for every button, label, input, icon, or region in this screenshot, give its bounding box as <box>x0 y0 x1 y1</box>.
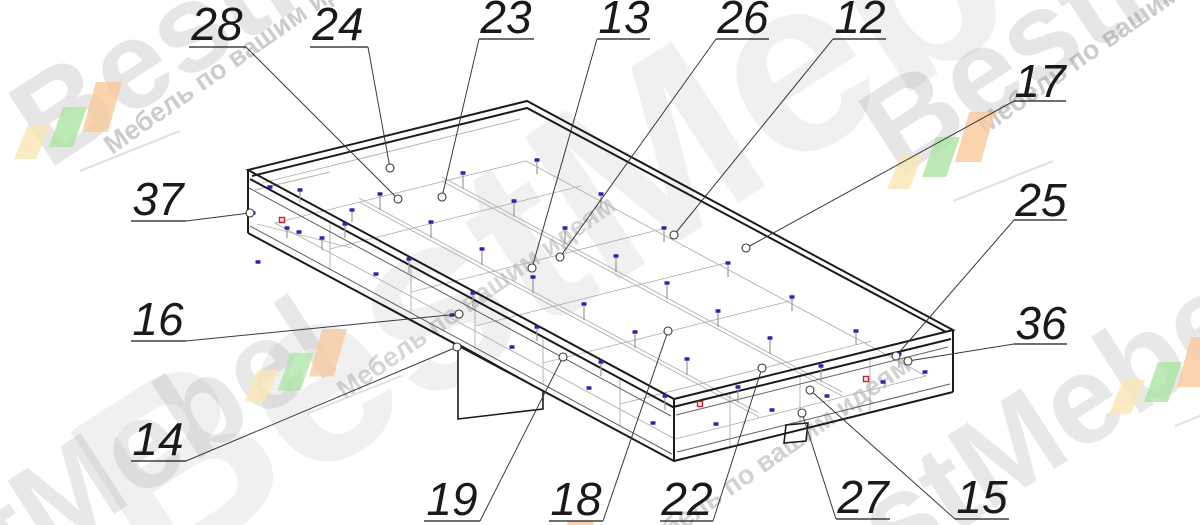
confirmat-marker <box>698 402 703 407</box>
screw-head <box>881 380 886 384</box>
screw-head <box>923 370 928 374</box>
leader-endpoint-37 <box>246 209 254 217</box>
screw-head <box>854 329 859 333</box>
part-label-12: 12 <box>834 0 885 43</box>
screw-head <box>298 188 303 192</box>
leader-endpoint-17 <box>742 244 750 252</box>
part-label-17: 17 <box>1014 55 1067 107</box>
leader-endpoint-36 <box>904 357 912 365</box>
screw-head <box>714 422 719 426</box>
part-label-26: 26 <box>716 0 769 43</box>
part-label-27: 27 <box>836 471 890 523</box>
screw-head <box>633 330 638 334</box>
leader-endpoint-13 <box>528 264 536 272</box>
screw-head <box>614 254 619 258</box>
leader-endpoint-19 <box>559 353 567 361</box>
leader-endpoint-14 <box>453 343 461 351</box>
leader-endpoint-26 <box>556 253 564 261</box>
part-label-16: 16 <box>132 293 184 345</box>
leader-endpoint-15 <box>806 386 814 394</box>
leader-line-18 <box>603 331 668 521</box>
screw-head <box>256 260 261 264</box>
screw-head <box>685 357 690 361</box>
part-label-19: 19 <box>426 473 477 525</box>
screw-head <box>736 385 741 389</box>
leader-line-37 <box>186 213 250 221</box>
screw-head <box>665 281 670 285</box>
screw-head <box>374 272 379 276</box>
part-label-18: 18 <box>550 473 602 525</box>
leader-line-25 <box>896 220 1014 356</box>
screw-head <box>268 185 273 189</box>
screw-head <box>480 247 485 251</box>
screw-head <box>587 386 592 390</box>
screw-head <box>535 325 540 329</box>
part-label-36: 36 <box>1015 297 1067 349</box>
leader-endpoint-12 <box>670 231 678 239</box>
screw-head <box>790 295 795 299</box>
leader-endpoint-25 <box>892 352 900 360</box>
screw-head <box>599 360 604 364</box>
leader-endpoint-28 <box>394 195 402 203</box>
assembly-diagram: BestMebelBestMebelBestMebelBestMebelBest… <box>0 0 1200 525</box>
leader-endpoint-22 <box>758 364 766 372</box>
part-label-15: 15 <box>956 471 1008 523</box>
screw-head <box>599 192 604 196</box>
part-label-24: 24 <box>311 0 363 50</box>
screw-head <box>461 171 466 175</box>
screw-head <box>563 226 568 230</box>
screw-head <box>662 226 667 230</box>
screw-head <box>343 222 348 226</box>
screw-head <box>582 302 587 306</box>
technical-drawing-canvas: BestMebelBestMebelBestMebelBestMebelBest… <box>0 0 1200 525</box>
screw-head <box>297 230 302 234</box>
part-label-13: 13 <box>598 0 650 43</box>
screw-head <box>471 291 476 295</box>
part-label-28: 28 <box>190 0 243 50</box>
screw-head <box>726 261 731 265</box>
screw-head <box>285 226 290 230</box>
screw-head <box>429 220 434 224</box>
screw-head <box>535 158 540 162</box>
part-label-14: 14 <box>132 413 183 465</box>
screw-head <box>663 394 668 398</box>
screw-head <box>350 208 355 212</box>
leader-endpoint-18 <box>664 327 672 335</box>
leader-endpoint-24 <box>386 164 394 172</box>
screw-head <box>768 336 773 340</box>
screw-head <box>378 192 383 196</box>
part-label-23: 23 <box>479 0 532 43</box>
watermark-brand-text: BestMebel <box>699 226 1200 525</box>
leader-line-28 <box>246 47 398 199</box>
screw-head <box>819 364 824 368</box>
screw-head <box>512 199 517 203</box>
screw-head <box>510 345 515 349</box>
leader-endpoint-23 <box>438 193 446 201</box>
screw-head <box>407 257 412 261</box>
leader-endpoint-27 <box>798 409 806 417</box>
screw-head <box>651 421 656 425</box>
screw-head <box>716 309 721 313</box>
screw-head <box>531 275 536 279</box>
screw-head <box>770 408 775 412</box>
part-label-25: 25 <box>1014 174 1067 226</box>
leader-endpoint-16 <box>455 310 463 318</box>
part-label-22: 22 <box>660 473 712 525</box>
leader-line-24 <box>368 47 390 168</box>
screw-head <box>825 394 830 398</box>
screw-head <box>320 236 325 240</box>
part-label-37: 37 <box>132 173 185 225</box>
